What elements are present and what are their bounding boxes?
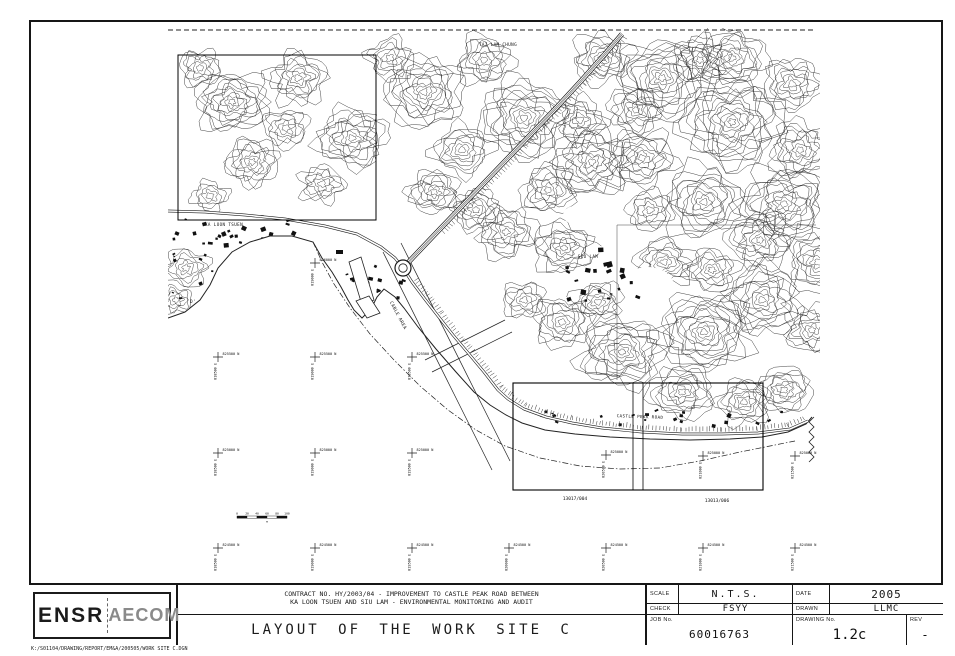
date-label: DATE [796, 591, 811, 597]
drawing-title-cell: CONTRACT NO. HY/2003/04 - IMPROVEMENT TO… [178, 585, 647, 645]
grid-easting-label: 820500 E [602, 554, 606, 571]
scale-unit-label: m [266, 520, 268, 524]
scale-tick-label: 100 [284, 512, 290, 516]
contract-line-2: KA LOON TSUEN AND SIU LAM - ENVIRONMENTA… [178, 598, 645, 606]
lot-number-label: 13017/004 [563, 496, 588, 502]
grid-northing-label: 825000 N [611, 450, 628, 454]
drawn-label: DRAWN [796, 606, 818, 612]
lot-number-label: 13013/006 [705, 498, 730, 504]
grid-easting-label: 821500 E [791, 554, 795, 571]
grid-easting-label: 818500 E [214, 363, 218, 380]
grid-easting-label: 819000 E [311, 269, 315, 286]
grid-easting-label: 819000 E [311, 554, 315, 571]
job-no-label: JOB No. [650, 617, 673, 623]
map-content: 826000 N819000 E825500 N818500 E825500 N… [155, 24, 857, 583]
grid-easting-label: 821000 E [699, 462, 703, 479]
site-map-canvas: 826000 N819000 E825500 N818500 E825500 N… [0, 0, 955, 656]
place-label: SIU LAM [578, 254, 599, 259]
logo-box: ENSR AECOM [33, 592, 171, 639]
grid-northing-label: 825500 N [223, 352, 240, 356]
contract-text: CONTRACT NO. HY/2003/04 - IMPROVEMENT TO… [178, 585, 645, 615]
check-value: FSYY [723, 604, 749, 614]
scale-tick-label: 0 [236, 512, 238, 516]
grid-easting-label: 818500 E [214, 459, 218, 476]
grid-northing-label: 826000 N [320, 258, 337, 262]
place-label: D' [190, 299, 196, 304]
scale-tick-label: 80 [275, 512, 279, 516]
grid-easting-label: 819000 E [311, 363, 315, 380]
grid-northing-label: 824500 N [514, 543, 531, 547]
grid-northing-label: 825000 N [708, 451, 725, 455]
scale-tick-label: 20 [245, 512, 249, 516]
valley-clearings [385, 206, 674, 341]
title-block-table: SCALE N.T.S. DATE 2005 CHECK FSYY DRAWN … [647, 585, 943, 645]
grid-easting-label: 819500 E [408, 363, 412, 380]
grid-easting-label: 820500 E [602, 461, 606, 478]
date-value: 2005 [871, 588, 902, 601]
rev-value: - [907, 624, 943, 645]
place-label: KA LOON TSUEN [205, 222, 243, 227]
grid-northing-label: 825000 N [417, 448, 434, 452]
slope-hatching [414, 37, 804, 432]
grid-northing-label: 824500 N [611, 543, 628, 547]
grid-easting-label: 819500 E [408, 459, 412, 476]
row-check-drawn: CHECK FSYY DRAWN LLMC [647, 604, 943, 615]
sea [168, 236, 820, 583]
place-label: TAI LAM CHUNG [479, 42, 517, 47]
row-job-drawingno-rev: JOB No. 60016763 DRAWING No. 1.2c REV - [647, 615, 943, 645]
scale-value: N.T.S. [711, 589, 759, 600]
drawing-no-label: DRAWING No. [796, 617, 836, 623]
grid-easting-label: 819500 E [408, 554, 412, 571]
grid-northing-label: 824500 N [708, 543, 725, 547]
file-path: K:/S01104/DRAWING/REPORT/EM&A/200505/WOR… [31, 646, 188, 652]
grid-easting-label: 818500 E [214, 554, 218, 571]
grid-northing-label: 824500 N [223, 543, 240, 547]
grid-northing-label: 825500 N [320, 352, 337, 356]
drawn-value: LLMC [874, 604, 900, 614]
grid-northing-label: 824500 N [800, 543, 817, 547]
drawing-sheet: 826000 N819000 E825500 N818500 E825500 N… [0, 0, 955, 656]
place-label: CASTLE PEAK ROAD [617, 413, 664, 420]
drawing-no-value: 1.2c [793, 624, 906, 645]
aecom-logo: AECOM [108, 605, 180, 626]
job-no-value: 60016763 [647, 624, 792, 645]
drawing-title: LAYOUT OF THE WORK SITE C [178, 615, 645, 645]
grid-northing-label: 825000 N [800, 451, 817, 455]
row-scale-date: SCALE N.T.S. DATE 2005 [647, 585, 943, 604]
scale-tick-label: 60 [265, 512, 269, 516]
grid-northing-label: 825000 N [320, 448, 337, 452]
contract-line-1: CONTRACT NO. HY/2003/04 - IMPROVEMENT TO… [178, 590, 645, 598]
grid-easting-label: 821500 E [791, 462, 795, 479]
rev-label: REV [910, 617, 922, 623]
logo-cell: ENSR AECOM [29, 585, 178, 645]
ensr-logo: ENSR [35, 604, 107, 628]
grid-easting-label: 820000 E [505, 554, 509, 571]
grid-easting-label: 821000 E [699, 554, 703, 571]
scale-tick-label: 40 [255, 512, 259, 516]
grid-northing-label: 825500 N [417, 352, 434, 356]
grid-northing-label: 824500 N [417, 543, 434, 547]
title-block: ENSR AECOM CONTRACT NO. HY/2003/04 - IMP… [29, 583, 943, 645]
scale-label: SCALE [650, 591, 670, 597]
grid-easting-label: 819000 E [311, 459, 315, 476]
check-label: CHECK [650, 606, 671, 612]
grid-northing-label: 824500 N [320, 543, 337, 547]
grid-northing-label: 825000 N [223, 448, 240, 452]
